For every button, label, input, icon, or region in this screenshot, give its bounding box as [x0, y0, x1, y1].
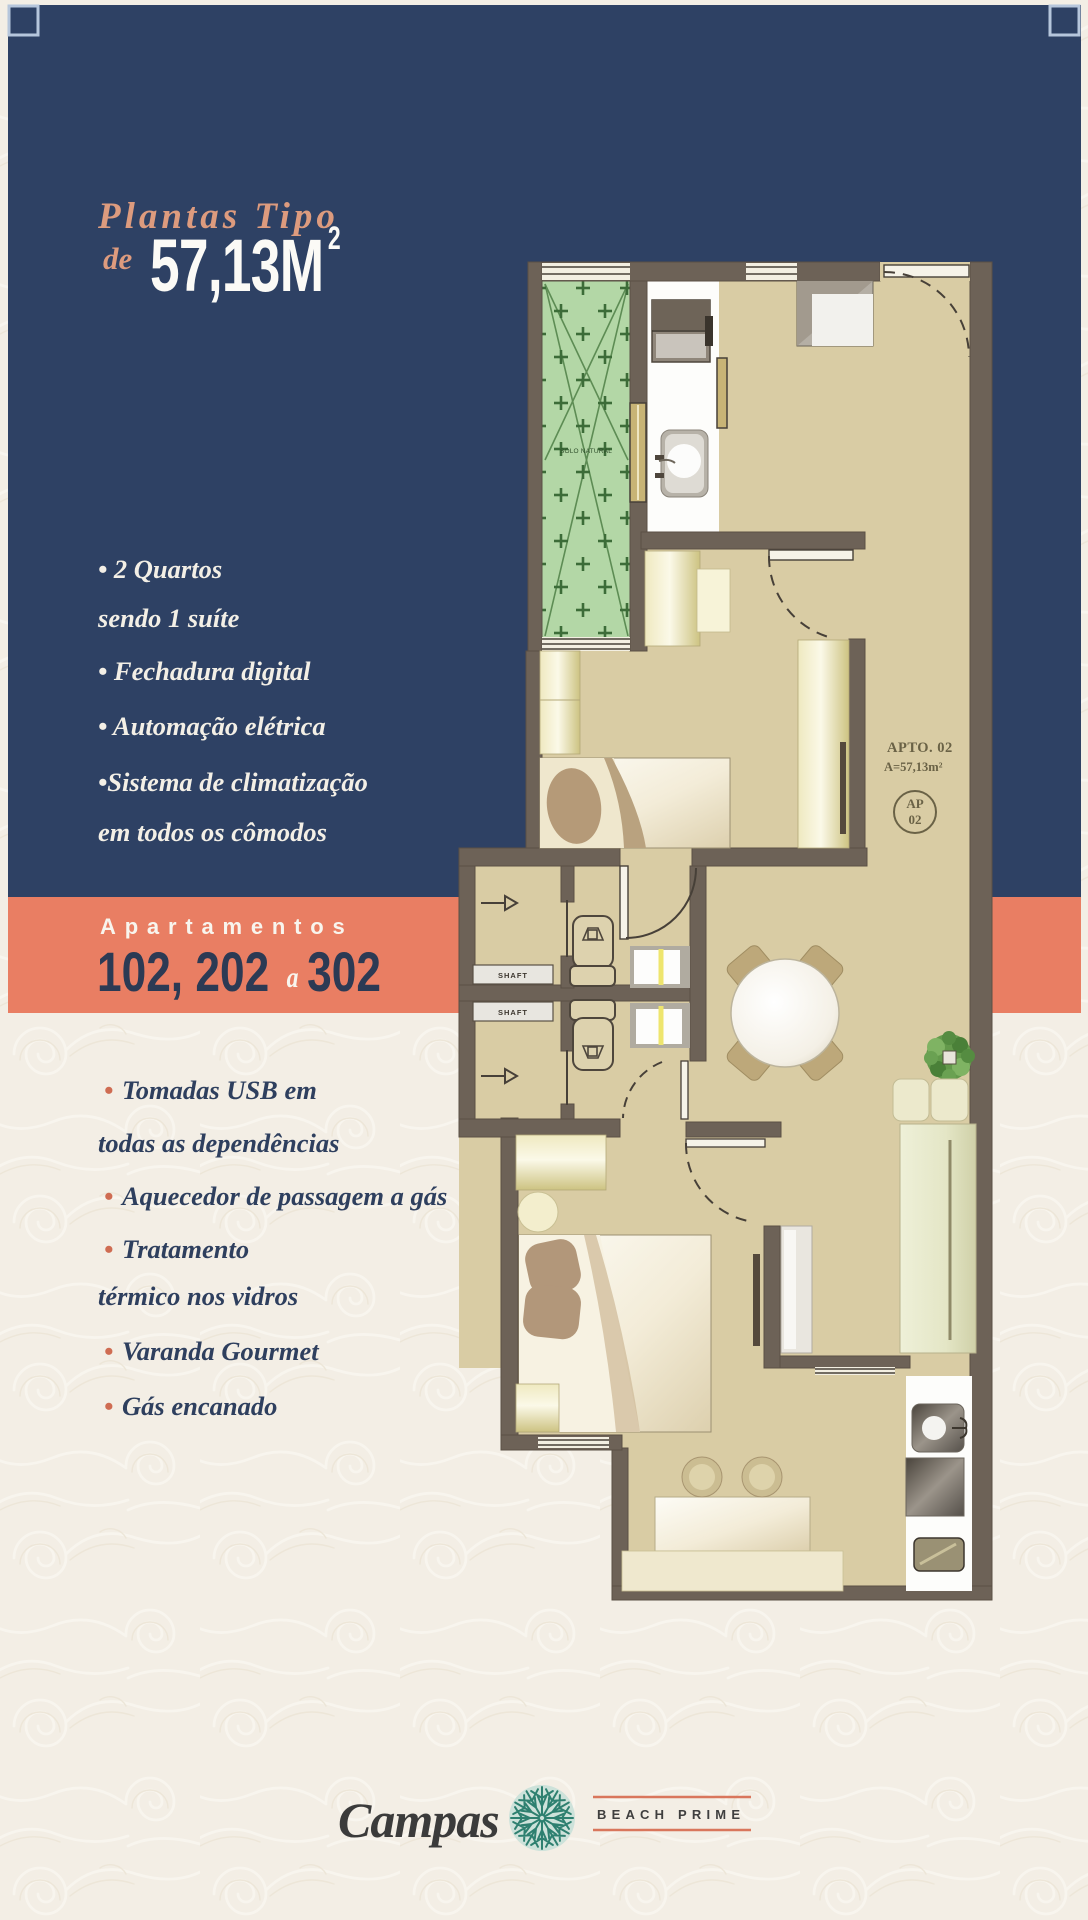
svg-text:102, 202: 102, 202 — [97, 940, 269, 1003]
svg-text:de: de — [103, 241, 133, 276]
svg-text:Gás encanado: Gás encanado — [122, 1391, 277, 1421]
svg-text:Tomadas USB em: Tomadas USB em — [122, 1075, 317, 1105]
svg-text:302: 302 — [307, 940, 381, 1003]
svg-text:Aquecedor de passagem a gás: Aquecedor de passagem a gás — [120, 1181, 447, 1211]
svg-text:•: • — [104, 1181, 113, 1211]
svg-text:em todos os cômodos: em todos os cômodos — [98, 817, 327, 847]
svg-text:A=57,13m²: A=57,13m² — [884, 760, 943, 774]
svg-text:Tratamento: Tratamento — [122, 1234, 249, 1264]
svg-text:• 2 Quartos: • 2 Quartos — [98, 554, 222, 584]
svg-text:SHAFT: SHAFT — [498, 971, 528, 980]
svg-text:• Fechadura digital: • Fechadura digital — [98, 656, 311, 686]
svg-text:•: • — [104, 1336, 113, 1366]
svg-text:•: • — [104, 1391, 113, 1421]
svg-text:2: 2 — [328, 220, 341, 256]
svg-text:•: • — [104, 1234, 113, 1264]
svg-text:Apartamentos: Apartamentos — [100, 914, 354, 939]
svg-text:todas as dependências: todas as dependências — [98, 1128, 339, 1158]
svg-text:Varanda Gourmet: Varanda Gourmet — [122, 1336, 320, 1366]
svg-text:térmico nos vidros: térmico nos vidros — [98, 1281, 298, 1311]
svg-text:APTO. 02: APTO. 02 — [887, 740, 953, 756]
svg-text:•: • — [104, 1075, 113, 1105]
svg-text:AP: AP — [906, 796, 923, 811]
svg-text:Campas: Campas — [338, 1792, 499, 1848]
svg-text:• Automação elétrica: • Automação elétrica — [98, 711, 326, 741]
svg-text:57,13M: 57,13M — [150, 224, 323, 307]
svg-text:SHAFT: SHAFT — [498, 1008, 528, 1017]
svg-text:02: 02 — [909, 812, 922, 827]
svg-text:SOLO NATURAL: SOLO NATURAL — [560, 448, 612, 455]
svg-text:sendo 1 suíte: sendo 1 suíte — [97, 603, 240, 633]
svg-text:a: a — [287, 960, 299, 993]
svg-text:BEACH PRIME: BEACH PRIME — [597, 1807, 745, 1822]
svg-text:•Sistema de climatização: •Sistema de climatização — [98, 767, 368, 797]
